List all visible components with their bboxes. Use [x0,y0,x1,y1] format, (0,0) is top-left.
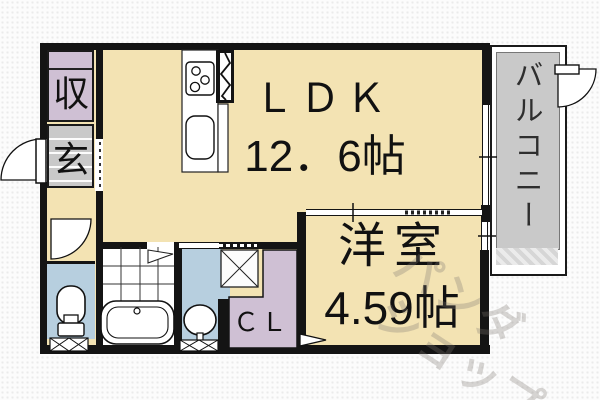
ldk-balcony-window [482,105,489,205]
ldk-size-label: 12．6帖 [244,135,405,179]
wall-left-upper [40,50,47,139]
bedroom-balcony-window [481,222,488,250]
wall-left-lower [40,182,47,354]
wall-entry-divider-lower [96,190,103,348]
wall-right-upper [482,43,490,105]
closet-label: ＣＬ [233,309,289,335]
ldk-label: ＬＤＫ [254,79,392,119]
storage-shelf-line [49,68,92,70]
balcony-label: バルコニー [511,60,540,235]
washroom-door-opening [179,242,219,249]
wall-top [40,43,490,50]
storage-label: 収 [53,76,89,112]
wall-closet-left [218,299,230,348]
wall-right-mid [481,205,490,222]
washroom-floor [181,245,222,340]
wall-bath-washroom [174,242,182,345]
washroom-floor-patch [218,286,230,300]
floorplan-canvas: ＬＤＫ 12．6帖 洋室 4.59帖 収 玄 ＣＬ バルコニー パンダ ショップ [0,0,600,400]
bathroom-door-opening [147,242,174,249]
entrance-step-dotted-line [99,142,101,188]
bedroom-sliding-door-track [306,209,482,216]
balcony-edge-hatch [496,248,558,265]
entrance-door-leaf [36,139,46,183]
toilet-room [47,261,95,339]
wall-bedroom-left [297,212,306,348]
entrance-label: 玄 [53,142,89,178]
wall-entry-divider-upper [96,50,103,140]
entrance-door-arc [1,139,42,180]
bathroom-floor [103,245,174,345]
